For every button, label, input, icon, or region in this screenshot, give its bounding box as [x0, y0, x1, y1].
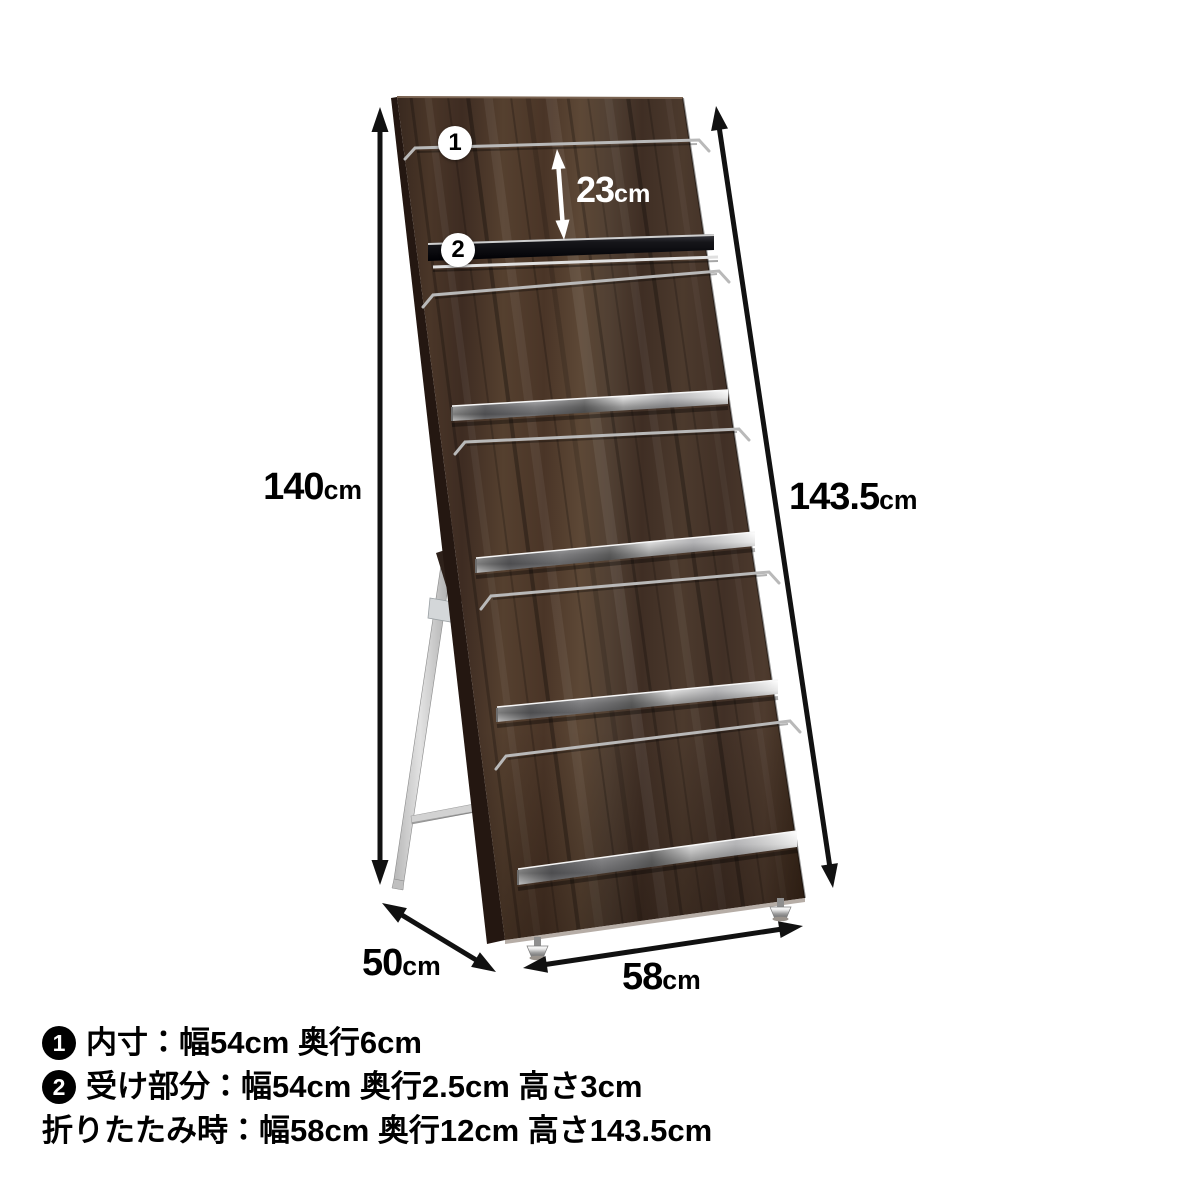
total-height-unit: cm	[879, 485, 917, 515]
spec-legend: 1 内寸：幅54cm 奥行6cm 2 受け部分：幅54cm 奥行2.5cm 高さ…	[42, 1026, 712, 1148]
panel	[391, 97, 805, 944]
callout-2-marker: 2	[441, 233, 475, 267]
legend-item: 折りたたみ時：幅58cm 奥行12cm 高さ143.5cm	[42, 1114, 712, 1148]
legend-item: 2 受け部分：幅54cm 奥行2.5cm 高さ3cm	[42, 1070, 712, 1104]
legend-text-1: 内寸：幅54cm 奥行6cm	[86, 1026, 422, 1060]
width-dimension-label: 58cm	[622, 958, 701, 996]
legend-badge-2: 2	[42, 1070, 76, 1104]
callout-1-marker: 1	[438, 126, 472, 160]
depth-dimension-label: 50cm	[362, 944, 441, 982]
legend-item: 1 内寸：幅54cm 奥行6cm	[42, 1026, 712, 1060]
callout-1-number: 1	[448, 131, 461, 155]
total-height-value: 143.5	[789, 476, 879, 518]
callout-2-number: 2	[451, 238, 464, 262]
legend-text-2: 受け部分：幅54cm 奥行2.5cm 高さ3cm	[86, 1070, 642, 1104]
legend-badge-1: 1	[42, 1026, 76, 1060]
rear-leg-foot	[392, 879, 404, 890]
total-height-dimension-label: 143.5cm	[789, 478, 918, 516]
rail-gap-value: 23	[576, 169, 614, 210]
rail-gap-unit: cm	[614, 180, 650, 208]
product-dimension-diagram: 1 2 140cm 143.5cm 23cm 50cm 58cm 1 内寸：幅5…	[0, 0, 1200, 1200]
depth-value: 50	[362, 942, 402, 984]
arrow-height-left	[372, 107, 389, 885]
rail-gap-dimension-label: 23cm	[576, 172, 650, 208]
panel-height-value: 140	[263, 466, 323, 508]
legend-text-3: 折りたたみ時：幅58cm 奥行12cm 高さ143.5cm	[42, 1114, 712, 1148]
width-unit: cm	[662, 965, 700, 995]
panel-height-dimension-label: 140cm	[228, 468, 362, 506]
panel-height-unit: cm	[324, 475, 362, 505]
depth-unit: cm	[402, 951, 440, 981]
width-value: 58	[622, 956, 662, 998]
